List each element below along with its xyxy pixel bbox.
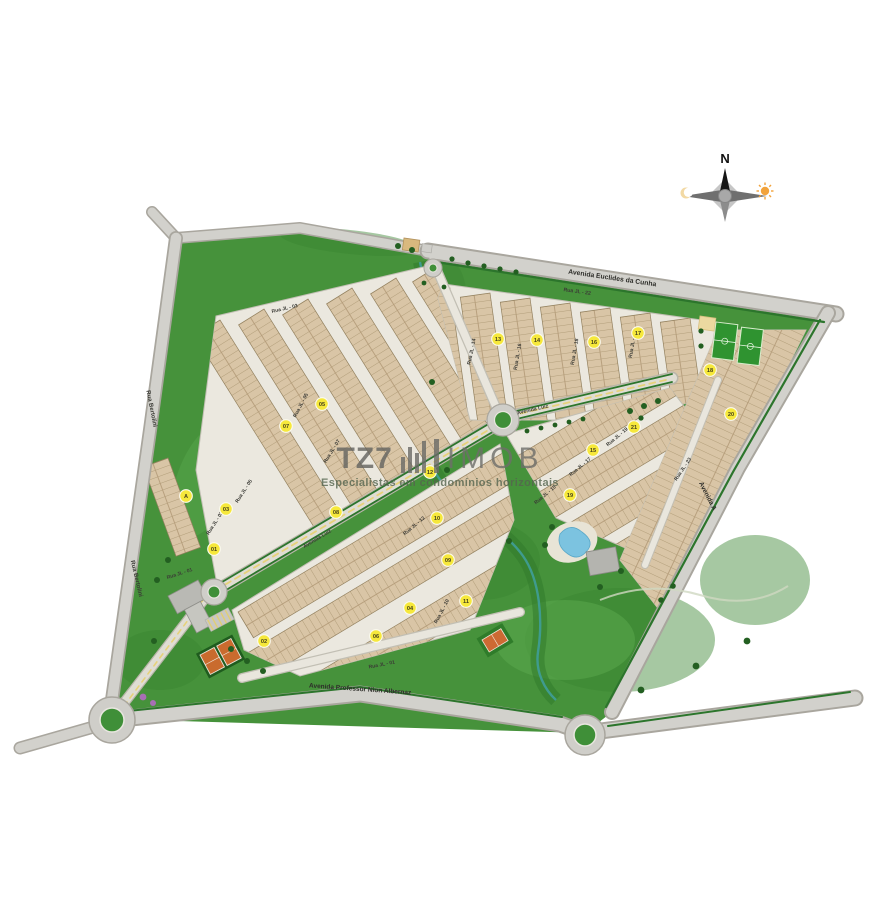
badge-quadra-07: 07	[280, 420, 293, 433]
svg-text:01: 01	[211, 547, 217, 553]
roundabout-north	[424, 259, 442, 277]
badge-quadra-08: 08	[330, 506, 343, 519]
badge-quadra-14: 14	[531, 334, 544, 347]
svg-text:21: 21	[631, 425, 637, 431]
watermark-logo-bars-icon	[401, 439, 439, 474]
svg-text:07: 07	[283, 424, 289, 430]
badge-quadra-05: 05	[316, 398, 329, 411]
badge-quadra-10: 10	[431, 512, 444, 525]
watermark-brand-imob: IMOB	[447, 444, 544, 474]
svg-text:03: 03	[223, 507, 229, 513]
roundabout-central	[487, 404, 519, 436]
svg-text:06: 06	[373, 634, 379, 640]
badge-quadra-01: 01	[208, 543, 221, 556]
svg-text:14: 14	[534, 338, 541, 344]
svg-text:11: 11	[463, 599, 469, 605]
roundabout-entrance-west	[201, 579, 227, 605]
clubhouse	[586, 547, 620, 576]
badge-quadra-17: 17	[632, 327, 645, 340]
badge-quadra-03: 03	[220, 503, 233, 516]
badge-quadra-19: 19	[564, 489, 577, 502]
badge-quadra-a: A	[180, 490, 193, 503]
watermark: TZ7 IMOB Especialistas em condomínios ho…	[285, 438, 595, 489]
badge-quadra-04: 04	[404, 602, 417, 615]
svg-text:19: 19	[567, 493, 573, 499]
svg-text:04: 04	[407, 606, 414, 612]
badge-quadra-02: 02	[258, 635, 271, 648]
svg-text:18: 18	[707, 368, 713, 374]
watermark-brand-row: TZ7 IMOB	[285, 438, 595, 474]
badge-quadra-20: 20	[725, 408, 738, 421]
sun-icon	[757, 183, 774, 200]
svg-text:08: 08	[333, 510, 339, 516]
compass-north-label: N	[720, 151, 729, 166]
badge-quadra-06: 06	[370, 630, 383, 643]
watermark-brand-tz7: TZ7	[336, 444, 392, 474]
badge-quadra-18: 18	[704, 364, 717, 377]
badge-quadra-13: 13	[492, 333, 505, 346]
badge-quadra-11: 11	[460, 595, 473, 608]
svg-text:16: 16	[591, 340, 597, 346]
badge-quadra-09: 09	[442, 554, 455, 567]
compass-rose: N	[681, 151, 774, 222]
badge-quadra-16: 16	[588, 336, 601, 349]
svg-text:A: A	[184, 494, 188, 500]
svg-text:20: 20	[728, 412, 734, 418]
svg-text:05: 05	[319, 402, 325, 408]
svg-text:17: 17	[635, 331, 641, 337]
masterplan-page: Avenida Euclides da Cunha Rua JL - 22 Av…	[0, 0, 869, 900]
badge-quadra-21: 21	[628, 421, 641, 434]
svg-text:09: 09	[445, 558, 451, 564]
svg-text:10: 10	[434, 516, 440, 522]
watermark-tagline: Especialistas em condomínios horizontais	[285, 477, 595, 489]
svg-text:02: 02	[261, 639, 267, 645]
svg-text:13: 13	[495, 337, 501, 343]
roundabout-southwest	[89, 697, 135, 743]
roundabout-southeast	[565, 715, 605, 755]
